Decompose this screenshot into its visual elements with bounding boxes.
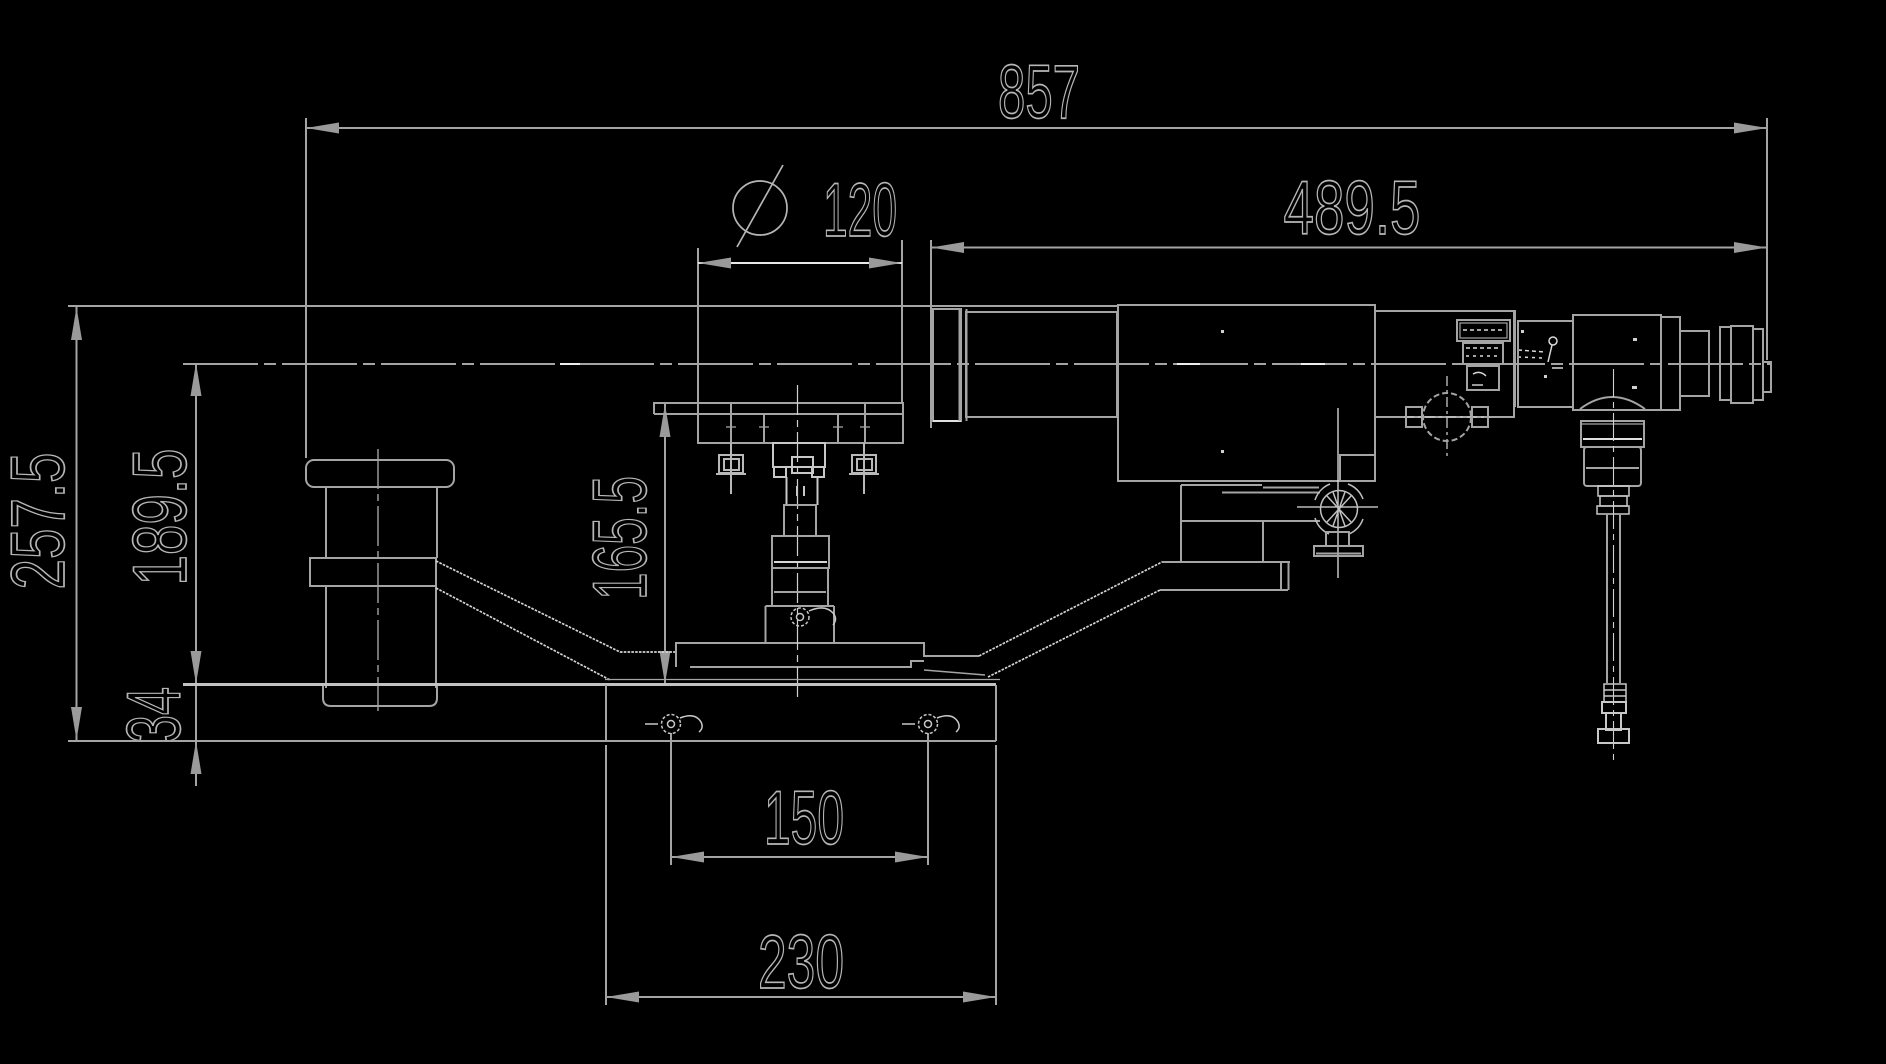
svg-text:230: 230 <box>758 920 844 1005</box>
svg-text:150: 150 <box>764 776 844 861</box>
svg-text:165.5: 165.5 <box>578 476 663 600</box>
svg-text:189.5: 189.5 <box>118 449 203 586</box>
svg-text:257.5: 257.5 <box>0 453 81 590</box>
svg-text:857: 857 <box>998 50 1080 135</box>
svg-text:34: 34 <box>112 687 197 743</box>
svg-text:489.5: 489.5 <box>1284 166 1421 251</box>
svg-text:120: 120 <box>823 168 897 253</box>
